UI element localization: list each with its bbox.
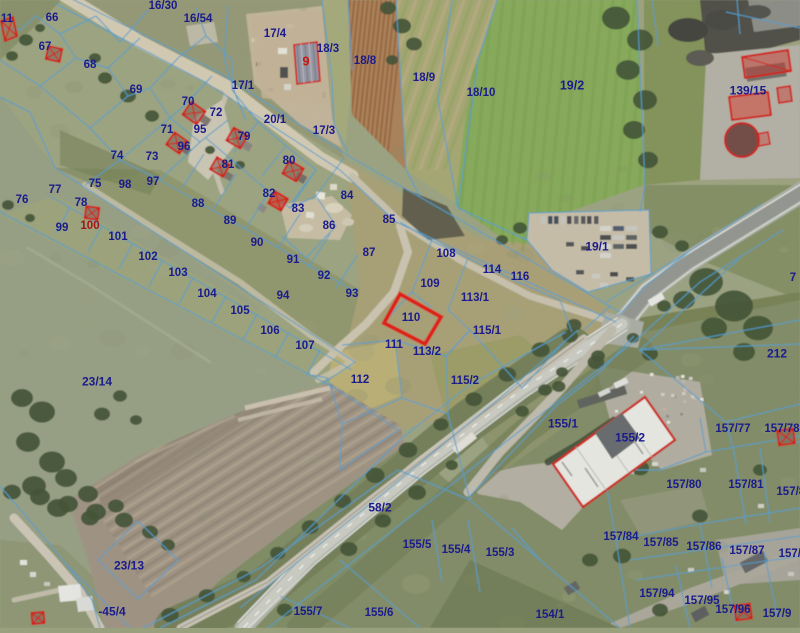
svg-text:157/96: 157/96 bbox=[715, 604, 750, 616]
svg-text:69: 69 bbox=[130, 84, 143, 96]
svg-text:157/77: 157/77 bbox=[715, 423, 750, 435]
svg-text:157/78: 157/78 bbox=[764, 423, 800, 435]
svg-text:157/80: 157/80 bbox=[666, 479, 701, 491]
svg-text:17/3: 17/3 bbox=[313, 125, 335, 137]
svg-text:115/2: 115/2 bbox=[451, 375, 479, 387]
svg-text:68: 68 bbox=[84, 59, 97, 71]
svg-text:16/54: 16/54 bbox=[184, 13, 213, 25]
svg-text:92: 92 bbox=[318, 270, 331, 282]
svg-text:101: 101 bbox=[108, 231, 128, 243]
svg-text:99: 99 bbox=[56, 222, 69, 234]
svg-text:71: 71 bbox=[161, 124, 174, 136]
svg-text:94: 94 bbox=[277, 290, 290, 302]
svg-text:111: 111 bbox=[385, 339, 404, 351]
svg-text:154/1: 154/1 bbox=[536, 609, 565, 621]
svg-text:97: 97 bbox=[147, 176, 160, 188]
svg-text:20/1: 20/1 bbox=[264, 114, 287, 126]
svg-text:23/14: 23/14 bbox=[82, 374, 112, 388]
svg-text:19/2: 19/2 bbox=[560, 79, 584, 93]
svg-text:109: 109 bbox=[420, 278, 439, 290]
svg-text:157/85: 157/85 bbox=[643, 537, 679, 549]
svg-text:157/81: 157/81 bbox=[728, 479, 764, 491]
svg-text:70: 70 bbox=[182, 96, 195, 108]
svg-text:95: 95 bbox=[194, 124, 207, 136]
svg-text:7: 7 bbox=[790, 272, 796, 284]
svg-text:58/2: 58/2 bbox=[368, 500, 392, 514]
svg-text:90: 90 bbox=[251, 237, 264, 249]
svg-text:88: 88 bbox=[192, 198, 205, 210]
svg-text:78: 78 bbox=[75, 197, 88, 209]
svg-text:9: 9 bbox=[302, 54, 309, 69]
svg-text:81: 81 bbox=[222, 159, 235, 171]
svg-text:18/3: 18/3 bbox=[317, 43, 339, 55]
svg-text:23/13: 23/13 bbox=[114, 558, 144, 572]
svg-text:16/30: 16/30 bbox=[149, 0, 178, 12]
svg-text:155/3: 155/3 bbox=[486, 547, 515, 559]
svg-text:18/8: 18/8 bbox=[354, 55, 377, 67]
svg-text:157/87: 157/87 bbox=[729, 545, 764, 557]
svg-text:116: 116 bbox=[511, 271, 530, 283]
svg-text:105: 105 bbox=[230, 305, 250, 317]
svg-text:74: 74 bbox=[111, 150, 124, 162]
svg-text:89: 89 bbox=[224, 215, 237, 227]
svg-text:212: 212 bbox=[767, 346, 787, 360]
svg-text:155/5: 155/5 bbox=[403, 539, 432, 551]
svg-text:157/8: 157/8 bbox=[779, 548, 800, 560]
svg-text:85: 85 bbox=[383, 214, 396, 226]
svg-text:103: 103 bbox=[168, 267, 187, 279]
svg-text:155/1: 155/1 bbox=[548, 416, 578, 430]
svg-text:77: 77 bbox=[49, 184, 62, 196]
svg-text:157/9: 157/9 bbox=[763, 608, 792, 620]
svg-text:155/2: 155/2 bbox=[615, 430, 645, 444]
svg-text:18/10: 18/10 bbox=[467, 87, 496, 99]
svg-text:79: 79 bbox=[238, 131, 251, 143]
svg-text:100: 100 bbox=[80, 220, 99, 232]
svg-text:115/1: 115/1 bbox=[473, 325, 502, 337]
svg-text:93: 93 bbox=[346, 288, 359, 300]
svg-text:83: 83 bbox=[292, 203, 305, 215]
svg-text:113/1: 113/1 bbox=[461, 292, 490, 304]
svg-text:19/1: 19/1 bbox=[585, 239, 609, 253]
svg-text:155/6: 155/6 bbox=[365, 607, 394, 619]
svg-text:-45/4: -45/4 bbox=[98, 604, 126, 618]
svg-text:157/84: 157/84 bbox=[603, 531, 639, 543]
svg-text:75: 75 bbox=[89, 178, 102, 190]
svg-text:18/9: 18/9 bbox=[413, 72, 435, 84]
svg-text:72: 72 bbox=[210, 107, 223, 119]
svg-text:139/15: 139/15 bbox=[730, 83, 767, 97]
svg-text:11: 11 bbox=[1, 13, 14, 25]
svg-text:66: 66 bbox=[46, 12, 59, 24]
svg-text:113/2: 113/2 bbox=[413, 346, 441, 358]
svg-text:157/86: 157/86 bbox=[686, 541, 721, 553]
svg-text:114: 114 bbox=[483, 264, 502, 276]
svg-text:84: 84 bbox=[341, 190, 354, 202]
svg-text:157/94: 157/94 bbox=[639, 588, 675, 600]
svg-text:107: 107 bbox=[295, 340, 314, 352]
svg-text:155/7: 155/7 bbox=[294, 606, 323, 618]
svg-text:112: 112 bbox=[351, 374, 370, 386]
svg-text:98: 98 bbox=[119, 179, 132, 191]
svg-text:86: 86 bbox=[323, 220, 336, 232]
svg-text:108: 108 bbox=[436, 248, 456, 260]
svg-text:80: 80 bbox=[283, 155, 296, 167]
svg-text:110: 110 bbox=[402, 312, 421, 324]
svg-text:104: 104 bbox=[197, 288, 217, 300]
svg-text:73: 73 bbox=[146, 151, 159, 163]
svg-text:17/1: 17/1 bbox=[232, 80, 255, 92]
svg-text:106: 106 bbox=[260, 325, 279, 337]
svg-text:157/82: 157/82 bbox=[776, 486, 800, 498]
svg-text:96: 96 bbox=[178, 141, 191, 153]
svg-text:155/4: 155/4 bbox=[442, 544, 471, 556]
svg-text:76: 76 bbox=[16, 194, 29, 206]
svg-text:67: 67 bbox=[39, 41, 52, 53]
svg-text:102: 102 bbox=[138, 251, 157, 263]
svg-text:82: 82 bbox=[263, 188, 276, 200]
svg-text:91: 91 bbox=[287, 254, 300, 266]
svg-text:87: 87 bbox=[363, 247, 376, 259]
svg-text:17/4: 17/4 bbox=[264, 28, 287, 40]
